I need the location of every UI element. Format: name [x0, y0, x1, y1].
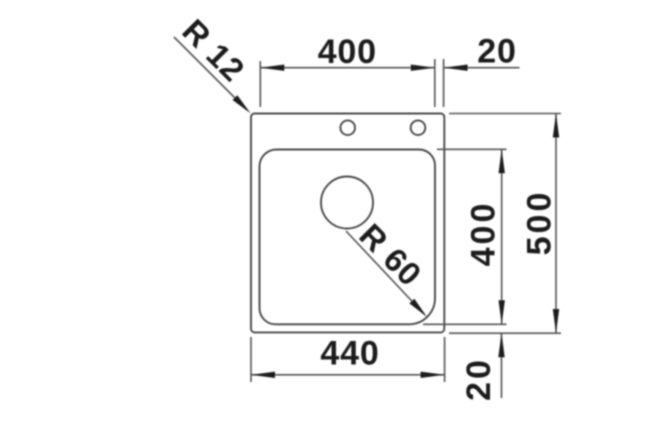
svg-text:R 60: R 60: [352, 217, 428, 293]
svg-text:400: 400: [318, 33, 377, 71]
svg-text:20: 20: [477, 33, 516, 71]
svg-text:500: 500: [520, 190, 558, 256]
svg-text:440: 440: [320, 335, 379, 373]
svg-text:400: 400: [465, 201, 503, 267]
svg-text:20: 20: [460, 357, 498, 401]
